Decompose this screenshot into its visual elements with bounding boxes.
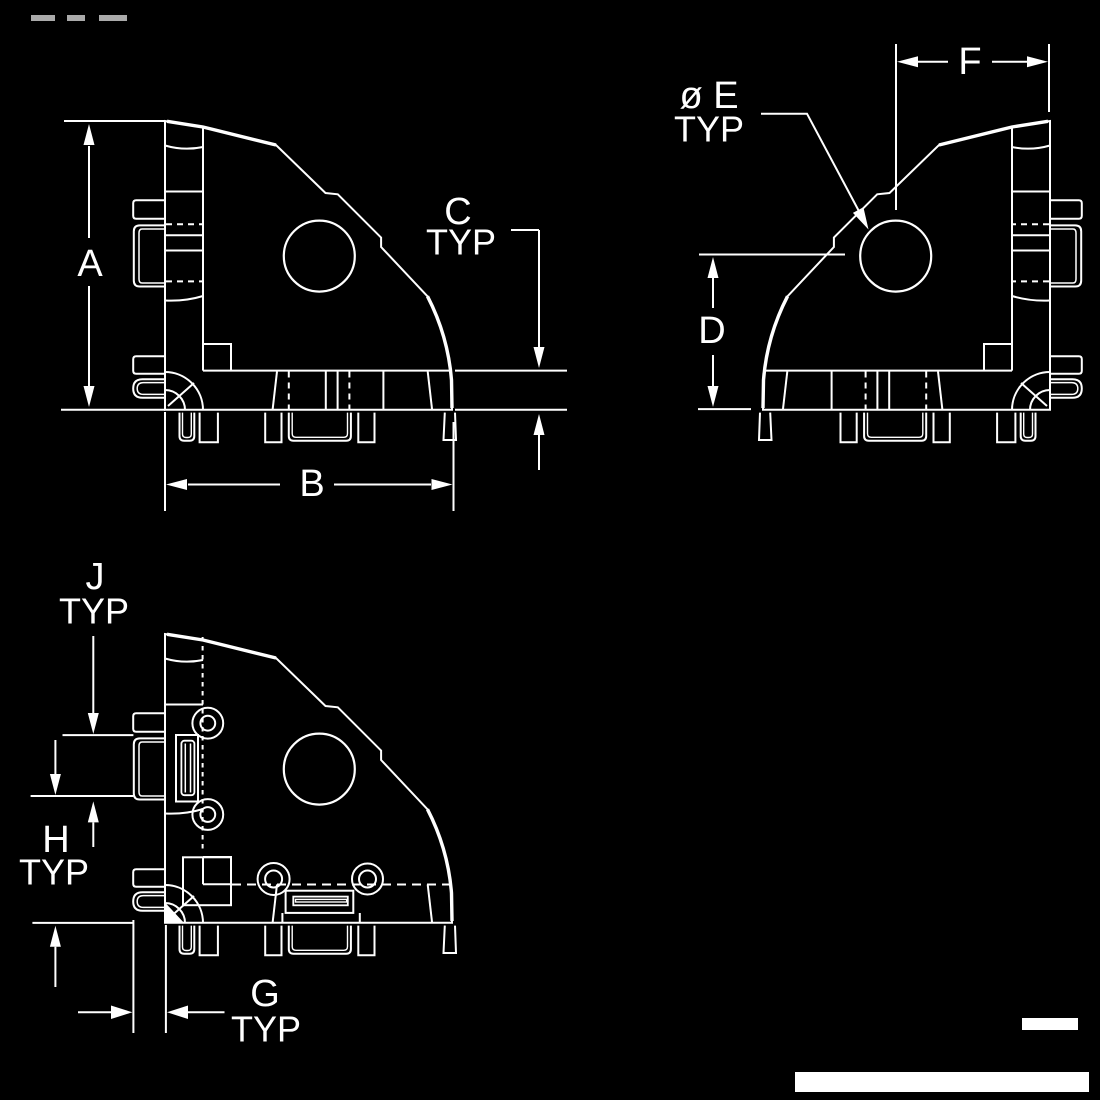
- svg-text:TYP: TYP: [674, 109, 744, 150]
- svg-text:A: A: [77, 243, 103, 285]
- svg-text:TYP: TYP: [59, 591, 129, 632]
- svg-text:TYP: TYP: [19, 852, 89, 893]
- svg-text:D: D: [698, 310, 725, 352]
- svg-text:B: B: [299, 463, 324, 505]
- svg-text:F: F: [958, 41, 981, 83]
- svg-text:TYP: TYP: [231, 1009, 301, 1050]
- svg-text:TYP: TYP: [426, 222, 496, 263]
